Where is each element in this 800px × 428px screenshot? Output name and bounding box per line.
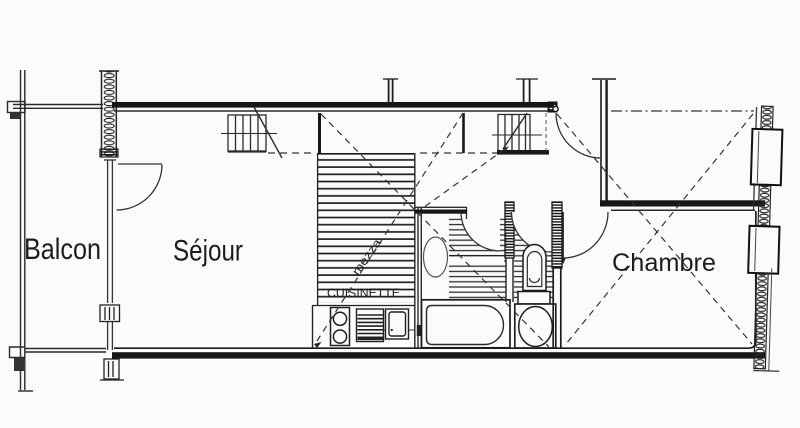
svg-text:Chambre: Chambre (612, 249, 716, 277)
svg-text:Balcon: Balcon (24, 233, 101, 266)
svg-text:Séjour: Séjour (173, 235, 243, 268)
svg-text:CUISINETTE: CUISINETTE (327, 286, 400, 300)
